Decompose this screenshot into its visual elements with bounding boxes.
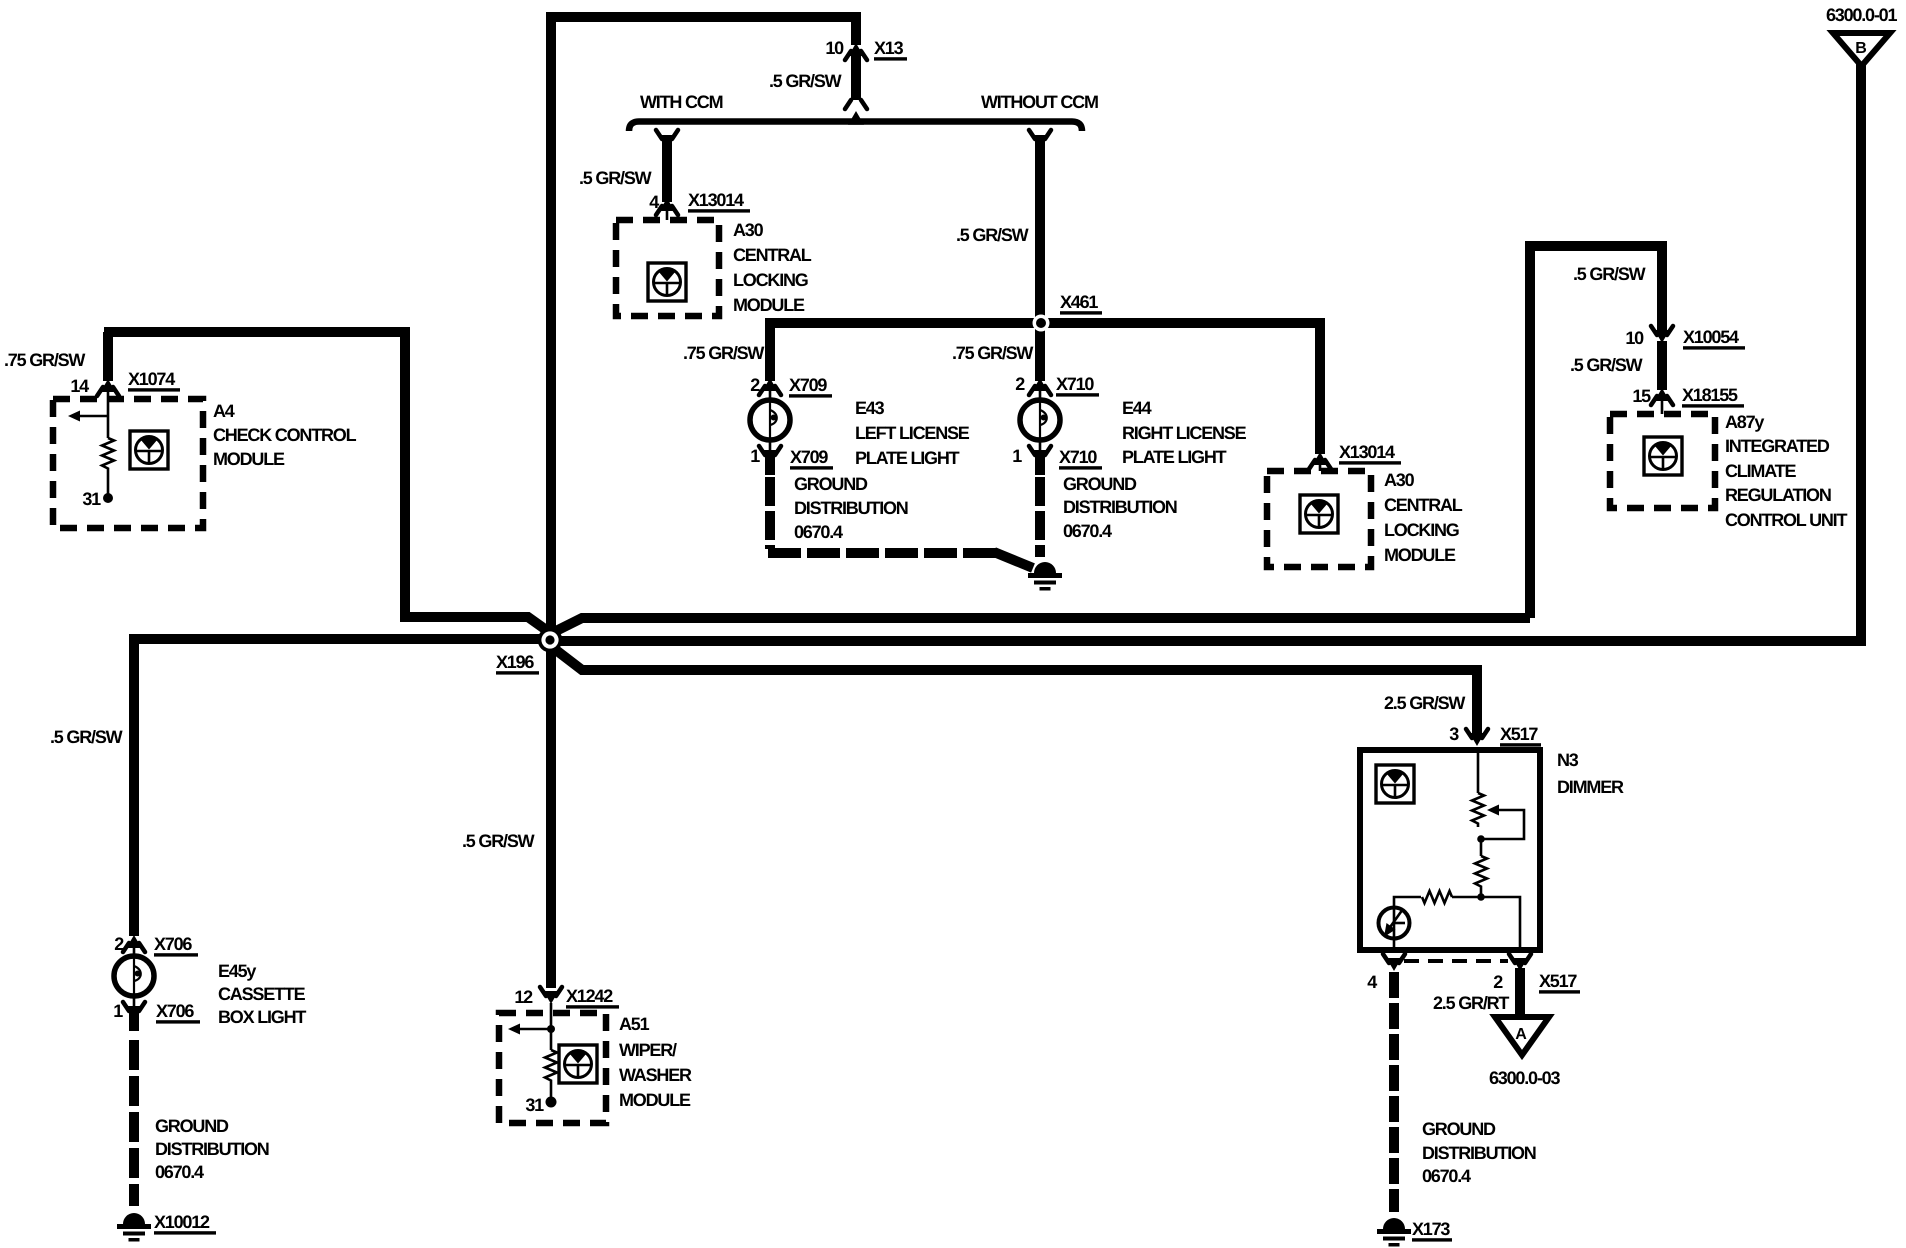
svg-text:6300.0-01: 6300.0-01: [1826, 5, 1897, 25]
svg-text:GROUND: GROUND: [155, 1116, 229, 1136]
svg-text:X13014: X13014: [1339, 442, 1395, 462]
svg-text:WASHER: WASHER: [619, 1065, 692, 1085]
svg-text:X1074: X1074: [128, 369, 175, 389]
svg-text:CLIMATE: CLIMATE: [1725, 461, 1796, 481]
svg-text:DISTRIBUTION: DISTRIBUTION: [1063, 497, 1177, 517]
svg-text:2: 2: [114, 934, 124, 954]
svg-text:A87y: A87y: [1725, 412, 1764, 432]
svg-text:INTEGRATED: INTEGRATED: [1725, 436, 1830, 456]
svg-text:GROUND: GROUND: [1422, 1119, 1496, 1139]
svg-text:A4: A4: [213, 401, 235, 421]
svg-text:2: 2: [1493, 972, 1503, 992]
svg-text:X710: X710: [1059, 447, 1097, 467]
svg-text:X706: X706: [156, 1001, 194, 1021]
svg-text:CHECK CONTROL: CHECK CONTROL: [213, 425, 357, 445]
svg-text:WITHOUT CCM: WITHOUT CCM: [981, 92, 1098, 112]
svg-text:.5 GR/SW: .5 GR/SW: [769, 71, 842, 91]
svg-text:X517: X517: [1539, 971, 1577, 991]
svg-text:CENTRAL: CENTRAL: [733, 245, 812, 265]
svg-text:0670.4: 0670.4: [794, 522, 843, 542]
svg-text:10: 10: [825, 38, 844, 58]
svg-text:X709: X709: [789, 375, 827, 395]
svg-text:DISTRIBUTION: DISTRIBUTION: [794, 498, 908, 518]
svg-text:RIGHT LICENSE: RIGHT LICENSE: [1122, 423, 1247, 443]
svg-text:6300.0-03: 6300.0-03: [1489, 1068, 1560, 1088]
svg-text:WIPER/: WIPER/: [619, 1040, 677, 1060]
svg-text:DISTRIBUTION: DISTRIBUTION: [1422, 1143, 1536, 1163]
svg-text:DIMMER: DIMMER: [1557, 777, 1624, 797]
svg-text:PLATE LIGHT: PLATE LIGHT: [1122, 447, 1227, 467]
svg-text:.75 GR/SW: .75 GR/SW: [4, 350, 85, 370]
svg-text:A30: A30: [1384, 470, 1415, 490]
svg-text:0670.4: 0670.4: [155, 1162, 204, 1182]
svg-text:3: 3: [1449, 724, 1459, 744]
svg-text:X1242: X1242: [566, 986, 613, 1006]
svg-text:E45y: E45y: [218, 961, 256, 981]
svg-text:A30: A30: [733, 220, 764, 240]
svg-text:.5 GR/SW: .5 GR/SW: [579, 168, 652, 188]
svg-text:12: 12: [514, 987, 533, 1007]
svg-text:1: 1: [750, 446, 760, 466]
svg-text:BOX LIGHT: BOX LIGHT: [218, 1007, 306, 1027]
svg-text:E43: E43: [855, 398, 885, 418]
svg-text:1: 1: [1012, 446, 1022, 466]
svg-text:2.5 GR/SW: 2.5 GR/SW: [1384, 693, 1465, 713]
svg-text:DISTRIBUTION: DISTRIBUTION: [155, 1139, 269, 1159]
svg-text:X709: X709: [790, 447, 828, 467]
svg-text:LEFT LICENSE: LEFT LICENSE: [855, 423, 970, 443]
svg-text:1: 1: [113, 1001, 123, 1021]
svg-text:0670.4: 0670.4: [1422, 1166, 1471, 1186]
svg-text:.75 GR/SW: .75 GR/SW: [952, 343, 1033, 363]
svg-text:MODULE: MODULE: [619, 1090, 691, 1110]
svg-text:LOCKING: LOCKING: [733, 270, 808, 290]
svg-text:PLATE LIGHT: PLATE LIGHT: [855, 448, 960, 468]
svg-text:X10054: X10054: [1683, 327, 1739, 347]
svg-text:LOCKING: LOCKING: [1384, 520, 1459, 540]
svg-text:X13: X13: [874, 38, 904, 58]
svg-text:X196: X196: [496, 652, 534, 672]
svg-text:CONTROL UNIT: CONTROL UNIT: [1725, 510, 1847, 530]
svg-text:4: 4: [649, 192, 659, 212]
svg-text:2: 2: [750, 375, 760, 395]
svg-text:MODULE: MODULE: [213, 449, 285, 469]
svg-text:2: 2: [1015, 374, 1025, 394]
svg-text:X13014: X13014: [688, 190, 744, 210]
svg-text:10: 10: [1625, 328, 1644, 348]
svg-text:.5 GR/SW: .5 GR/SW: [1573, 264, 1646, 284]
svg-text:31: 31: [82, 489, 101, 509]
svg-text:X517: X517: [1500, 724, 1538, 744]
svg-text:MODULE: MODULE: [1384, 545, 1456, 565]
svg-text:A51: A51: [619, 1014, 650, 1034]
svg-text:X710: X710: [1056, 374, 1094, 394]
svg-text:31: 31: [525, 1095, 544, 1115]
svg-text:2.5 GR/RT: 2.5 GR/RT: [1433, 993, 1509, 1013]
svg-text:14: 14: [70, 376, 89, 396]
svg-text:MODULE: MODULE: [733, 295, 805, 315]
svg-text:X706: X706: [154, 934, 192, 954]
svg-text:4: 4: [1367, 972, 1377, 992]
svg-text:X173: X173: [1412, 1219, 1450, 1239]
svg-text:15: 15: [1632, 386, 1651, 406]
svg-text:.5 GR/SW: .5 GR/SW: [50, 727, 123, 747]
svg-text:GROUND: GROUND: [1063, 474, 1137, 494]
svg-text:.75 GR/SW: .75 GR/SW: [683, 343, 764, 363]
svg-text:B: B: [1855, 40, 1867, 57]
svg-text:CENTRAL: CENTRAL: [1384, 495, 1463, 515]
svg-text:A: A: [1515, 1026, 1527, 1043]
svg-text:CASSETTE: CASSETTE: [218, 984, 306, 1004]
svg-text:.5 GR/SW: .5 GR/SW: [462, 831, 535, 851]
svg-text:WITH CCM: WITH CCM: [640, 92, 723, 112]
svg-text:X461: X461: [1060, 292, 1098, 312]
svg-text:.5 GR/SW: .5 GR/SW: [956, 225, 1029, 245]
svg-text:0670.4: 0670.4: [1063, 521, 1112, 541]
svg-text:N3: N3: [1557, 750, 1579, 770]
svg-text:REGULATION: REGULATION: [1725, 485, 1831, 505]
svg-text:X10012: X10012: [154, 1212, 210, 1232]
svg-text:X18155: X18155: [1682, 385, 1738, 405]
svg-text:.5 GR/SW: .5 GR/SW: [1570, 355, 1643, 375]
svg-text:E44: E44: [1122, 398, 1152, 418]
svg-text:GROUND: GROUND: [794, 474, 868, 494]
